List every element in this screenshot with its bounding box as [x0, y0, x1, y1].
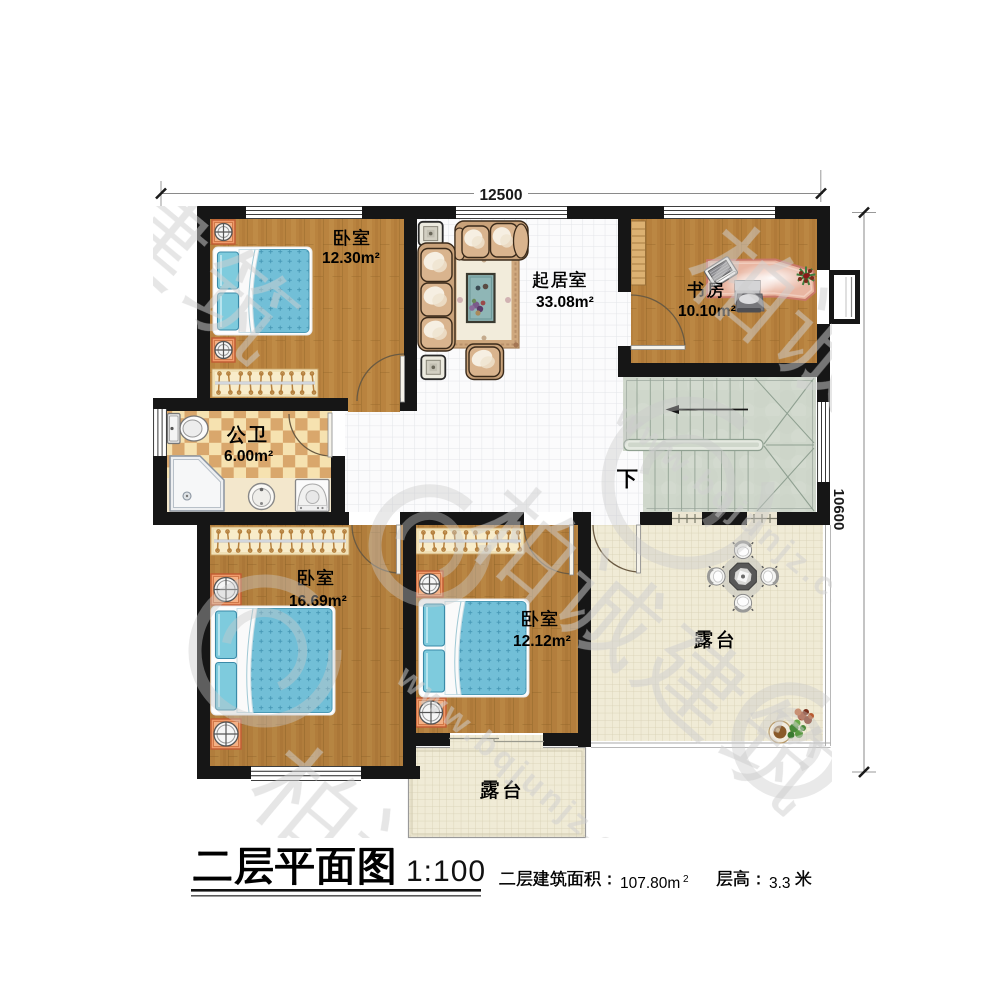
svg-text:3.3: 3.3	[769, 875, 791, 892]
svg-text:1:100: 1:100	[406, 855, 486, 888]
svg-text:12500: 12500	[479, 187, 522, 204]
svg-text:107.80m: 107.80m	[620, 875, 680, 892]
svg-text:10600: 10600	[830, 489, 847, 531]
svg-text:2: 2	[683, 874, 689, 885]
